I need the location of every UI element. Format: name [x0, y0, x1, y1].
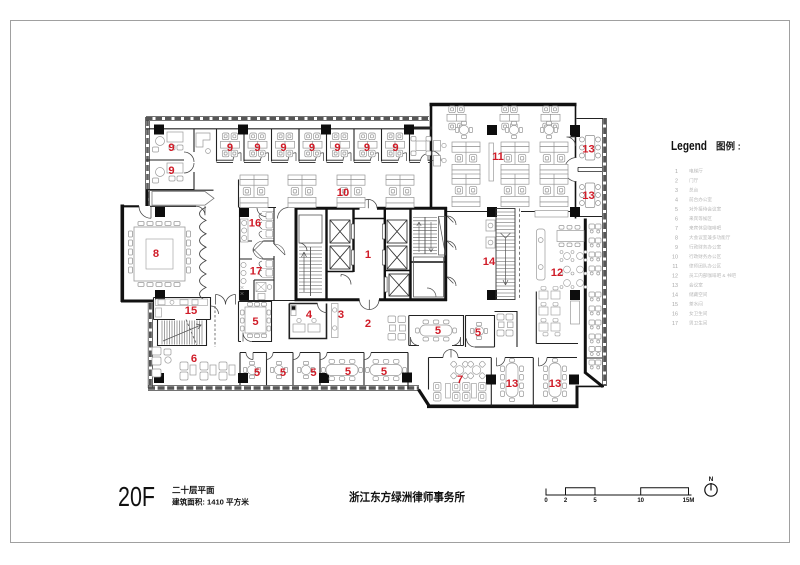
svg-text:5: 5 [475, 327, 481, 339]
svg-text:12: 12 [551, 267, 563, 279]
svg-text:9: 9 [309, 142, 315, 154]
svg-text:员工内部咖啡吧 & 书吧: 员工内部咖啡吧 & 书吧 [689, 272, 736, 279]
svg-text:浙江东方绿洲律师事务所: 浙江东方绿洲律师事务所 [349, 490, 465, 504]
svg-text:9: 9 [168, 142, 174, 154]
svg-text:15M: 15M [683, 498, 695, 504]
svg-text:7: 7 [457, 374, 463, 386]
svg-text:门厅: 门厅 [689, 177, 699, 184]
svg-text:9: 9 [280, 142, 286, 154]
svg-text:3: 3 [675, 188, 678, 194]
svg-text:10: 10 [337, 187, 349, 199]
svg-text:13: 13 [506, 378, 518, 390]
svg-text:1: 1 [365, 249, 371, 261]
svg-text:13: 13 [672, 283, 678, 289]
svg-text:5: 5 [252, 316, 258, 328]
svg-text:5: 5 [381, 366, 387, 378]
svg-text:5: 5 [254, 367, 260, 379]
svg-text:律师团队办公区: 律师团队办公区 [689, 263, 722, 270]
svg-text:9: 9 [254, 142, 260, 154]
svg-text:会议室: 会议室 [689, 282, 703, 289]
svg-text:9: 9 [364, 142, 370, 154]
svg-text:4: 4 [675, 198, 678, 204]
svg-text:20F: 20F [118, 481, 155, 512]
svg-text:1: 1 [675, 169, 678, 175]
svg-text:图例 :: 图例 : [716, 141, 741, 153]
svg-text:大会议室兼多功能厅: 大会议室兼多功能厅 [689, 234, 731, 241]
svg-text:男卫生间: 男卫生间 [689, 320, 708, 327]
svg-text:8: 8 [675, 236, 678, 242]
svg-text:2: 2 [365, 318, 371, 330]
svg-text:4: 4 [306, 309, 313, 321]
svg-text:二十层平面: 二十层平面 [172, 485, 215, 495]
svg-text:对外接待会议室: 对外接待会议室 [689, 206, 722, 213]
svg-text:9: 9 [334, 142, 340, 154]
svg-text:17: 17 [250, 266, 262, 278]
svg-text:9: 9 [227, 142, 233, 154]
svg-text:7: 7 [675, 226, 678, 232]
svg-text:9: 9 [168, 165, 174, 177]
svg-text:10: 10 [637, 498, 644, 504]
svg-text:电梯厅: 电梯厅 [689, 168, 703, 175]
svg-text:11: 11 [492, 151, 504, 163]
svg-text:前台办公室: 前台办公室 [689, 196, 712, 203]
svg-text:2: 2 [675, 179, 678, 185]
svg-text:6: 6 [191, 353, 197, 365]
svg-text:16: 16 [249, 218, 261, 230]
svg-text:17: 17 [672, 321, 678, 327]
svg-text:储藏空间: 储藏空间 [689, 291, 708, 298]
svg-text:来宾休息咖啡吧: 来宾休息咖啡吧 [689, 225, 722, 232]
svg-text:总台: 总台 [689, 187, 699, 194]
svg-text:5: 5 [345, 366, 351, 378]
svg-text:13: 13 [549, 378, 561, 390]
svg-text:14: 14 [483, 256, 496, 268]
svg-text:16: 16 [672, 312, 678, 318]
svg-text:茶水间: 茶水间 [689, 301, 703, 308]
svg-text:5: 5 [435, 325, 441, 337]
svg-text:9: 9 [392, 142, 398, 154]
svg-text:女卫生间: 女卫生间 [689, 310, 708, 317]
svg-text:5: 5 [280, 367, 286, 379]
svg-text:12: 12 [672, 274, 678, 280]
svg-text:11: 11 [672, 264, 678, 270]
svg-text:建筑面积: 1410 平方米: 建筑面积: 1410 平方米 [171, 497, 249, 507]
svg-text:5: 5 [310, 367, 316, 379]
svg-text:9: 9 [675, 245, 678, 251]
svg-text:N: N [709, 476, 714, 483]
svg-text:8: 8 [153, 248, 159, 260]
svg-text:3: 3 [338, 309, 344, 321]
svg-text:5: 5 [675, 207, 678, 213]
svg-text:13: 13 [582, 144, 594, 156]
svg-text:15: 15 [672, 302, 678, 308]
svg-text:14: 14 [672, 293, 678, 299]
svg-text:行政财务办公区: 行政财务办公区 [689, 253, 722, 260]
svg-text:6: 6 [675, 217, 678, 223]
svg-text:来宾等候区: 来宾等候区 [689, 215, 712, 222]
svg-text:13: 13 [582, 190, 594, 202]
svg-text:行政财务办公室: 行政财务办公室 [689, 244, 722, 251]
svg-text:10: 10 [672, 255, 678, 261]
svg-text:15: 15 [185, 305, 197, 317]
svg-text:Legend: Legend [671, 139, 707, 153]
